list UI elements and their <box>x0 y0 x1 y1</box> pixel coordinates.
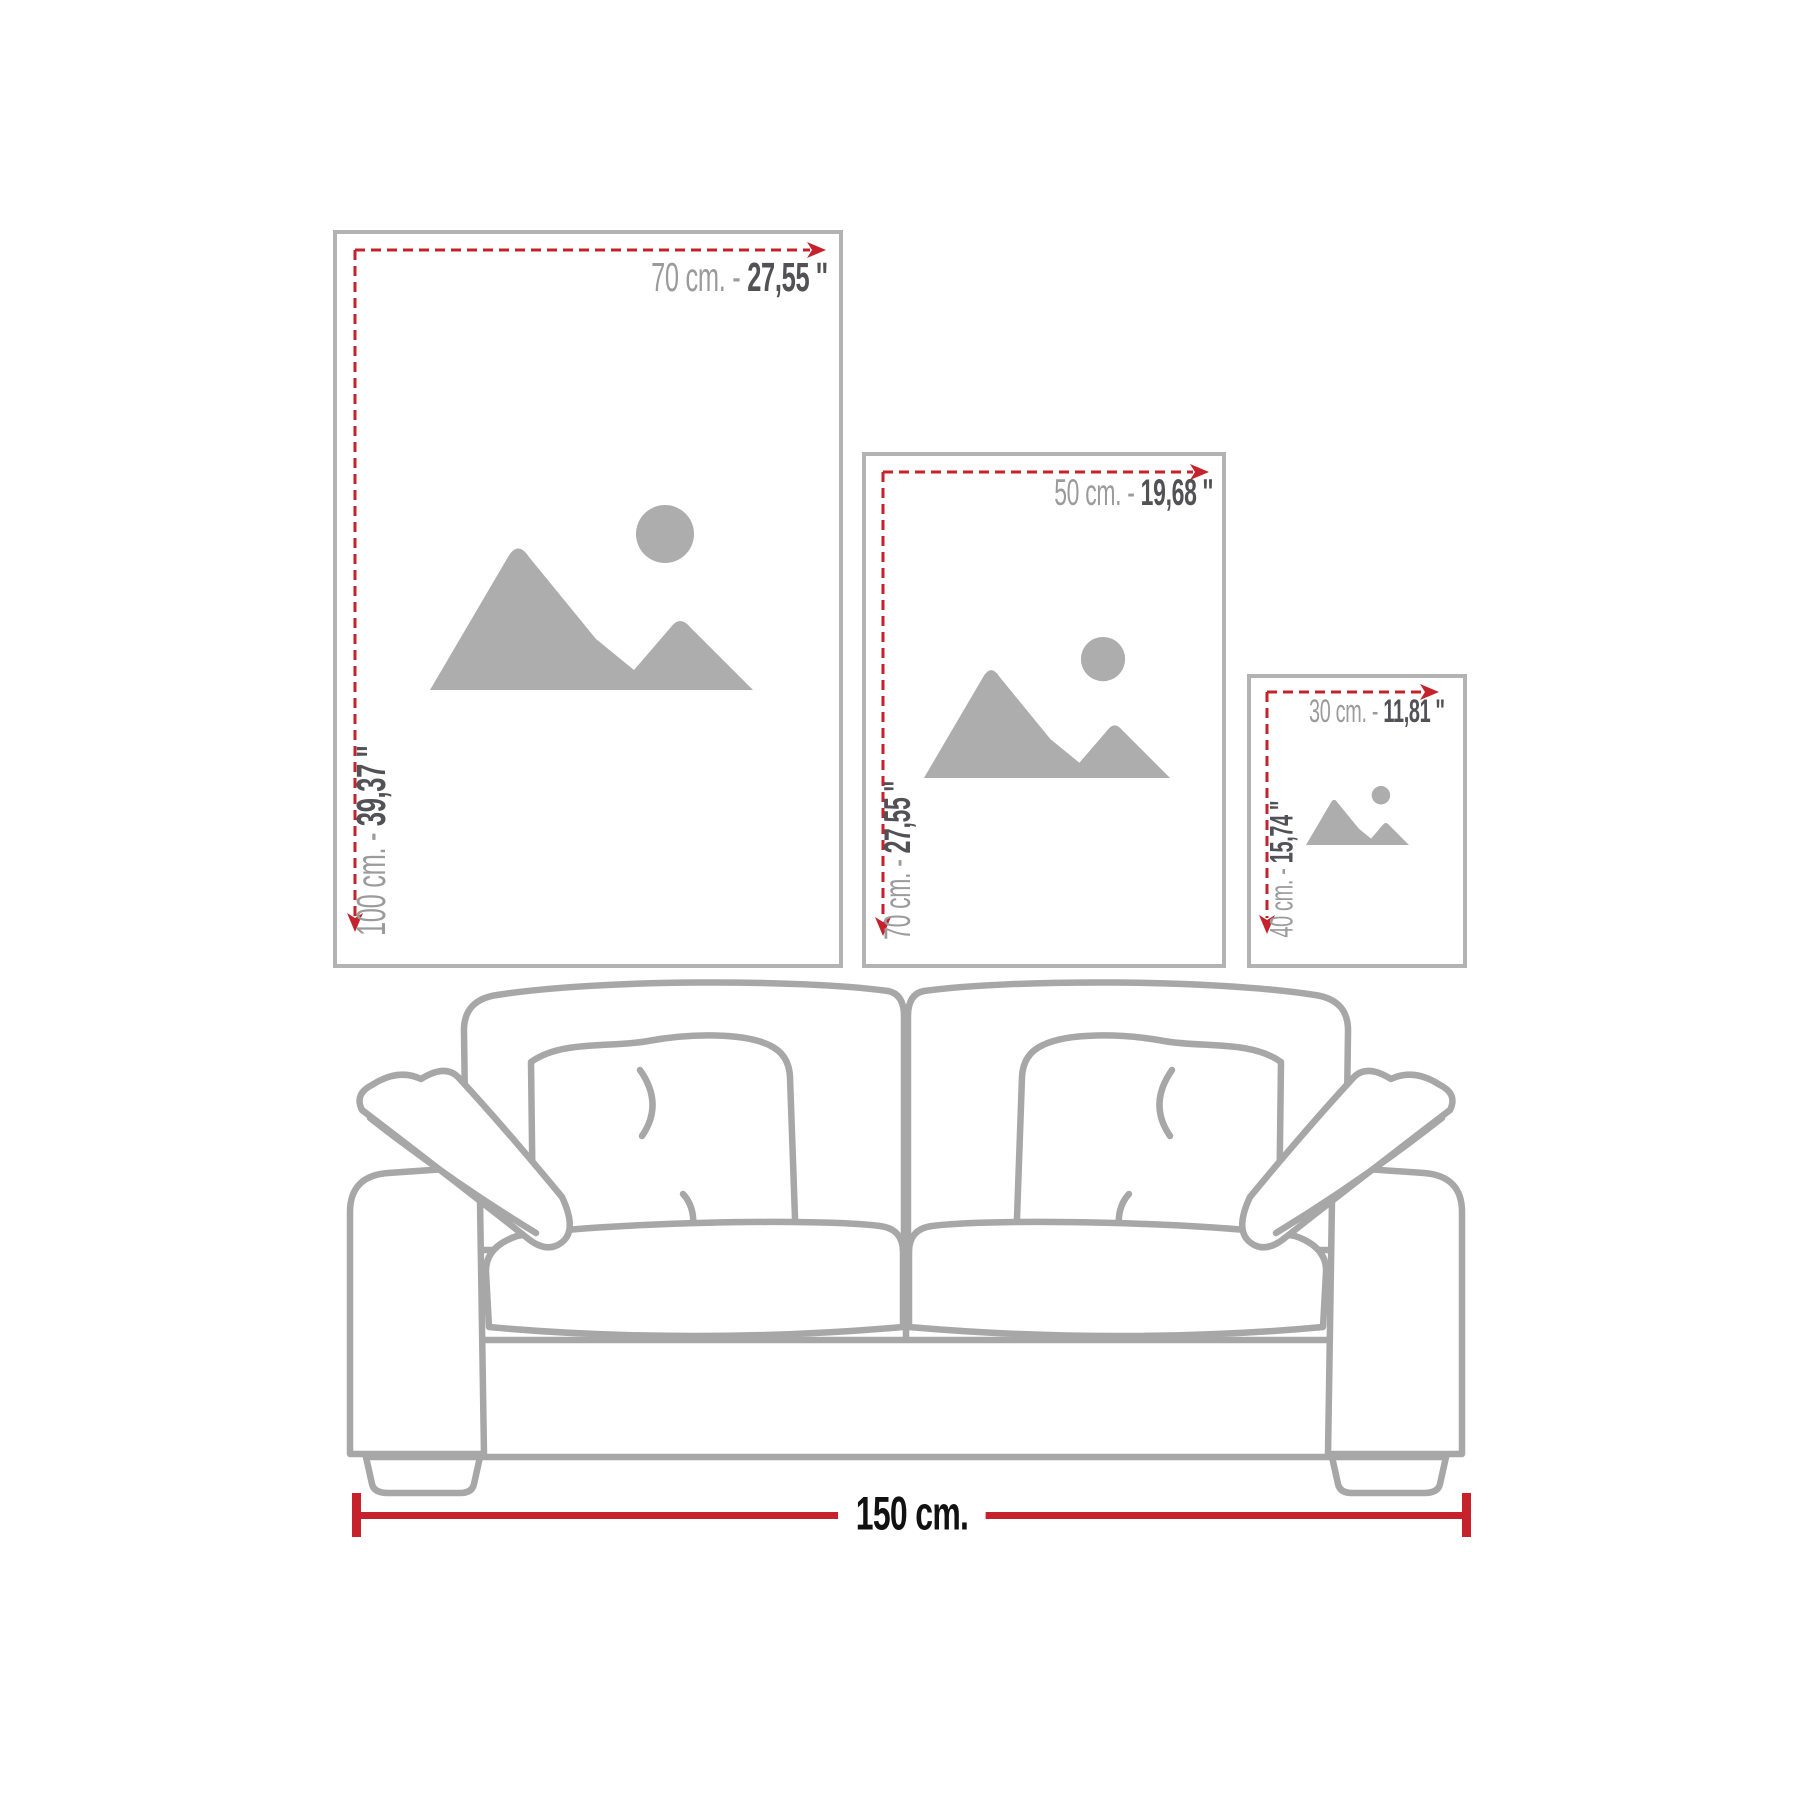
height-inch-value: 39,37 '' <box>348 746 394 826</box>
sofa-illustration <box>330 960 1490 1510</box>
height-dimension-label: 100 cm. - 39,37 '' <box>350 746 393 936</box>
sofa-foot-left <box>366 1457 480 1493</box>
height-cm-value: 70 cm. - <box>877 860 918 940</box>
width-inch-value: 27,55 '' <box>747 254 827 300</box>
image-placeholder-icon <box>922 637 1172 778</box>
height-cm-value: 40 cm. - <box>1263 869 1299 938</box>
sofa-width-label: 150 cm. <box>838 1485 986 1540</box>
width-cm-value: 30 cm. - <box>1309 693 1378 729</box>
width-dimension-label: 30 cm. - 11,81 '' <box>1309 695 1444 729</box>
width-cm-value: 50 cm. - <box>1054 472 1134 513</box>
sofa-width-dimension: 150 cm. <box>352 1493 1471 1537</box>
image-placeholder-icon <box>1305 786 1410 845</box>
dimension-end-cap-right <box>1462 1493 1471 1537</box>
width-inch-value: 11,81 '' <box>1383 693 1444 729</box>
dimension-end-cap-left <box>352 1493 361 1537</box>
width-cm-value: 70 cm. - <box>651 254 740 300</box>
sofa-base <box>460 1340 1352 1457</box>
width-dimension-label: 70 cm. - 27,55 '' <box>651 256 827 299</box>
height-inch-value: 27,55 '' <box>877 781 918 853</box>
sofa-arm-left <box>350 1169 484 1454</box>
poster-frame-small: 30 cm. - 11,81 '' 40 cm. - 15,74 '' <box>1247 674 1467 968</box>
sofa-arm-right <box>1328 1169 1462 1454</box>
width-dimension-label: 50 cm. - 19,68 '' <box>1054 474 1213 513</box>
width-inch-value: 19,68 '' <box>1141 472 1213 513</box>
size-guide-infographic: 70 cm. - 27,55 '' 100 cm. - 39,37 '' 50 … <box>0 0 1800 1800</box>
image-placeholder-icon <box>428 505 755 690</box>
poster-frame-large: 70 cm. - 27,55 '' 100 cm. - 39,37 '' <box>333 230 843 968</box>
height-cm-value: 100 cm. - <box>348 833 394 936</box>
sofa-foot-right <box>1332 1457 1446 1493</box>
poster-frame-medium: 50 cm. - 19,68 '' 70 cm. - 27,55 '' <box>862 452 1226 968</box>
height-inch-value: 15,74 '' <box>1263 802 1299 864</box>
height-dimension-label: 40 cm. - 15,74 '' <box>1265 802 1299 938</box>
height-dimension-label: 70 cm. - 27,55 '' <box>879 781 918 940</box>
